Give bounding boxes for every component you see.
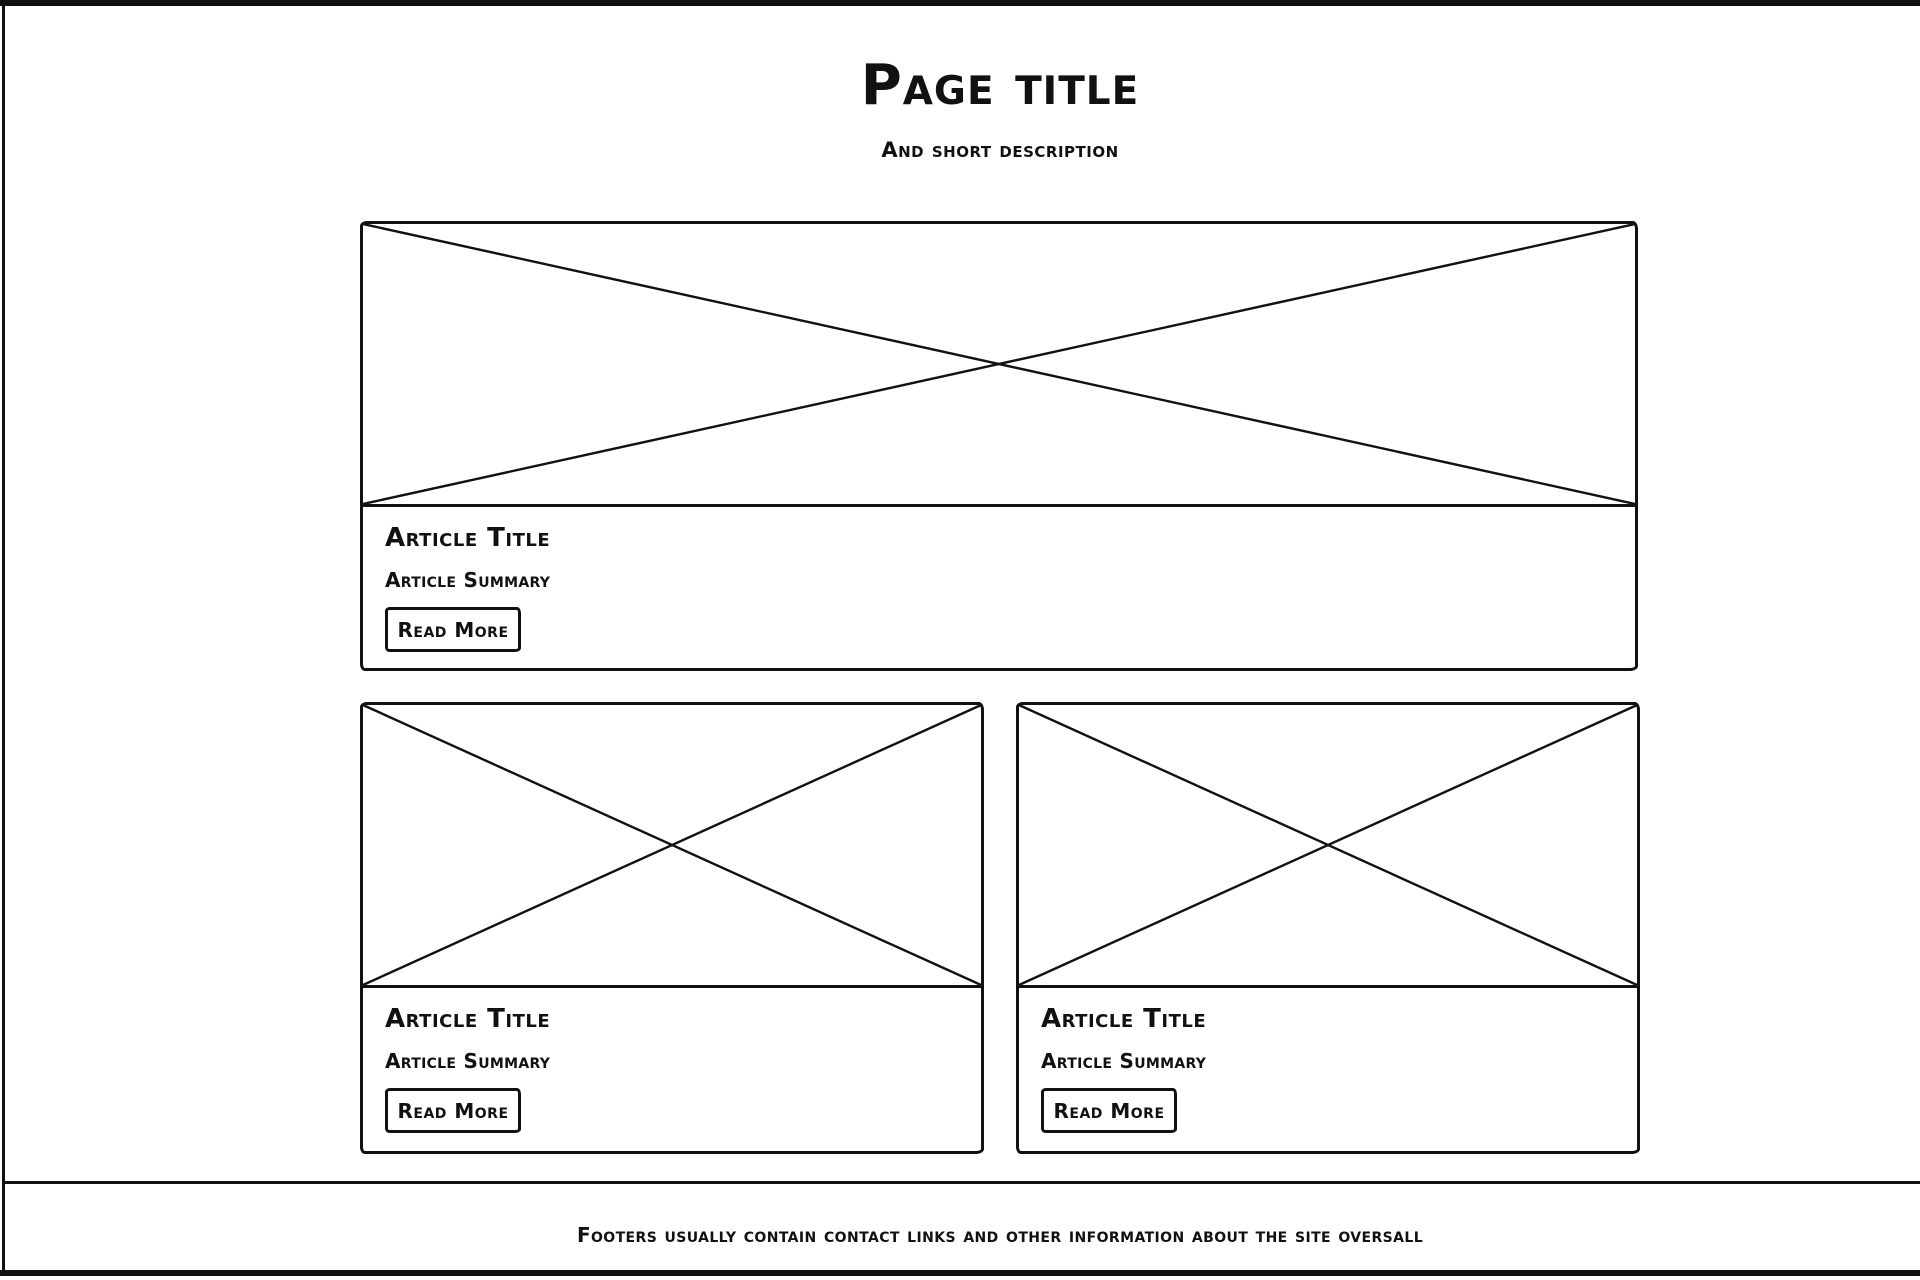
image-placeholder <box>1019 705 1637 988</box>
article-title: Article Title <box>385 1002 961 1036</box>
article-summary: Article Summary <box>1041 1048 1617 1074</box>
image-placeholder-cross-icon <box>363 705 981 985</box>
read-more-button[interactable]: Read More <box>385 1088 521 1133</box>
page-border-left <box>2 0 5 1276</box>
article-card-right: Article Title Article Summary Read More <box>1016 702 1640 1154</box>
image-placeholder <box>363 224 1635 507</box>
article-body: Article Title Article Summary Read More <box>363 507 1635 652</box>
article-card-left: Article Title Article Summary Read More <box>360 702 984 1154</box>
wireframe-page: Page title And short description Article… <box>0 0 1920 1280</box>
article-title: Article Title <box>385 521 1615 555</box>
page-description: And short description <box>360 138 1640 163</box>
read-more-button[interactable]: Read More <box>385 607 521 652</box>
article-summary: Article Summary <box>385 1048 961 1074</box>
image-placeholder-cross-icon <box>1019 705 1637 985</box>
read-more-button[interactable]: Read More <box>1041 1088 1177 1133</box>
footer-text: Footers usually contain contact links an… <box>360 1222 1640 1248</box>
article-card-featured: Article Title Article Summary Read More <box>360 221 1638 671</box>
image-placeholder-cross-icon <box>363 224 1635 504</box>
article-title: Article Title <box>1041 1002 1617 1036</box>
footer-divider <box>2 1181 1920 1184</box>
article-body: Article Title Article Summary Read More <box>1019 988 1637 1133</box>
page-title: Page title <box>360 52 1640 119</box>
image-placeholder <box>363 705 981 988</box>
article-body: Article Title Article Summary Read More <box>363 988 981 1133</box>
article-summary: Article Summary <box>385 567 1615 593</box>
page-border-top <box>0 0 1920 6</box>
page-border-bottom <box>0 1270 1920 1276</box>
